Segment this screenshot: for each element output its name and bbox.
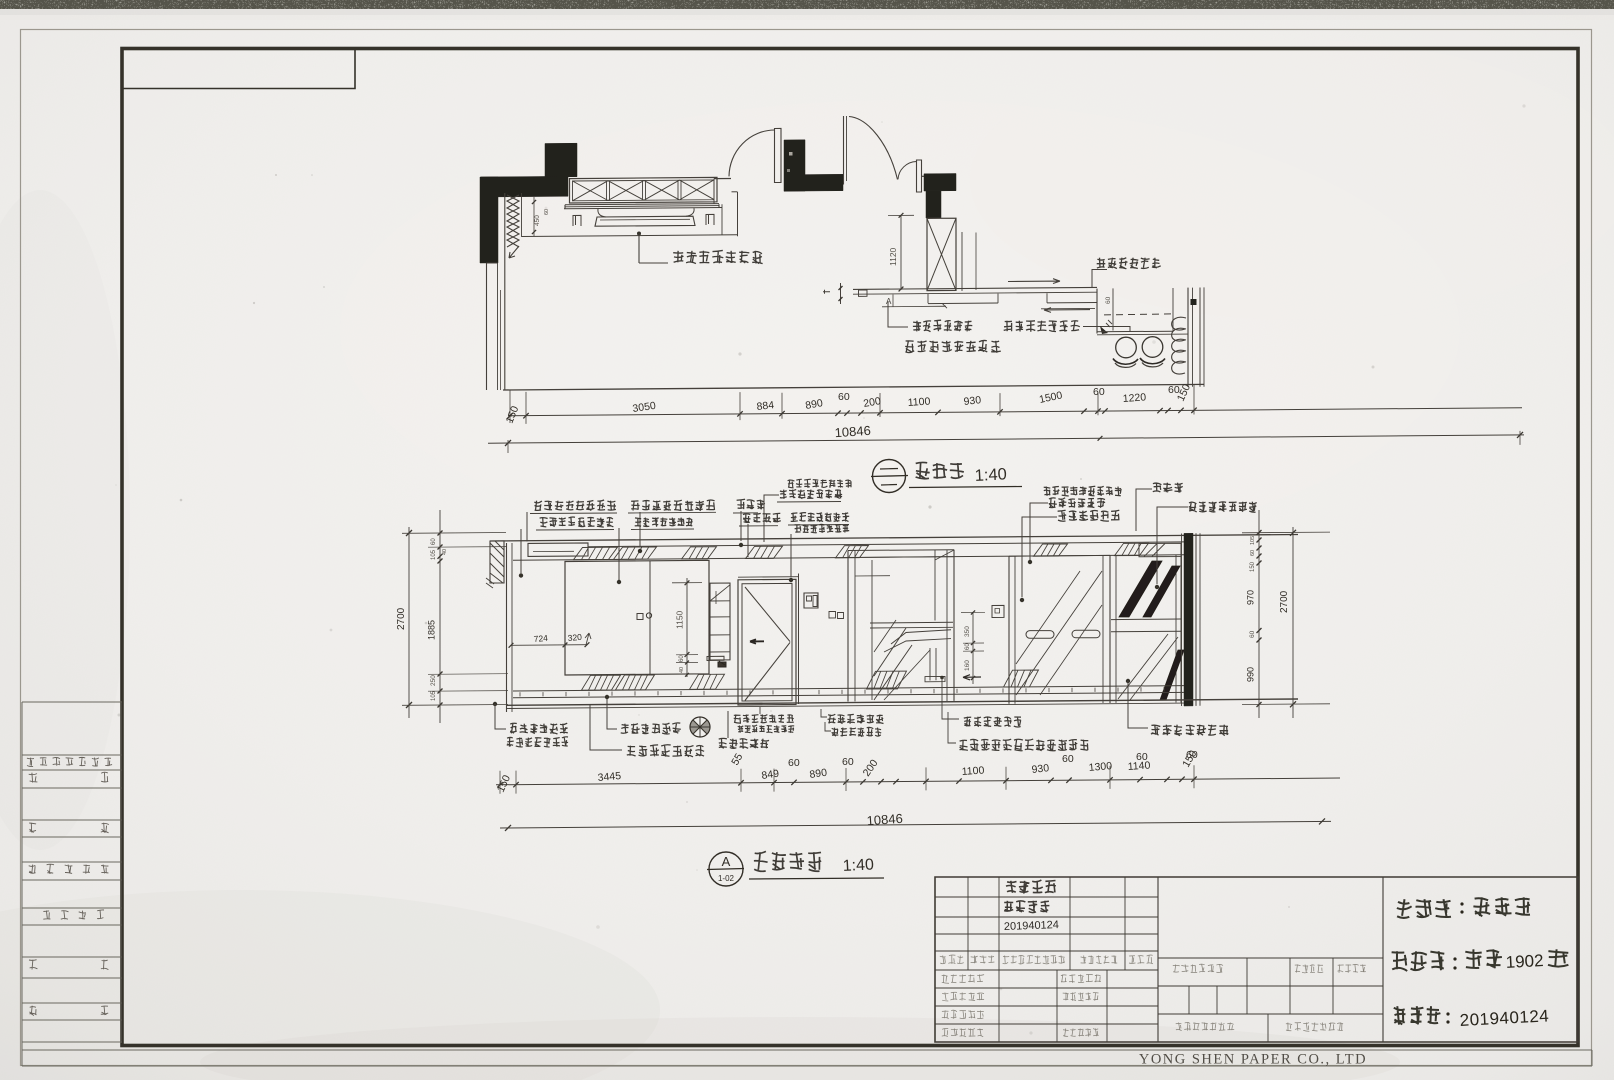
svg-text:60: 60 [1105, 296, 1112, 304]
svg-text:890: 890 [809, 767, 828, 781]
svg-text:60: 60 [842, 756, 854, 768]
svg-text:105: 105 [1250, 536, 1256, 545]
svg-text:A: A [886, 297, 892, 306]
svg-text:250: 250 [430, 675, 437, 686]
svg-text:970: 970 [1246, 590, 1256, 605]
svg-text:105: 105 [431, 690, 437, 701]
svg-text:1140: 1140 [1127, 759, 1151, 773]
svg-text:1:40: 1:40 [842, 856, 874, 875]
svg-text:201940124: 201940124 [1004, 919, 1059, 933]
svg-text:1300: 1300 [1088, 760, 1112, 774]
svg-text:450: 450 [534, 215, 541, 226]
svg-text:1:40: 1:40 [974, 465, 1007, 485]
svg-text:60: 60 [838, 391, 850, 403]
svg-text:1885: 1885 [427, 620, 437, 640]
svg-text:1220: 1220 [1122, 391, 1146, 405]
svg-text:150: 150 [1250, 561, 1256, 572]
svg-text:1100: 1100 [907, 395, 931, 409]
svg-text:1150: 1150 [675, 610, 685, 629]
svg-text:1120: 1120 [888, 247, 898, 266]
svg-text:849: 849 [761, 768, 780, 782]
svg-text:2700: 2700 [396, 607, 407, 630]
svg-text:10846: 10846 [834, 423, 871, 440]
svg-text:60: 60 [788, 757, 800, 769]
svg-text:990: 990 [1246, 667, 1256, 682]
svg-text:60: 60 [1093, 386, 1105, 398]
svg-text:10846: 10846 [866, 811, 903, 828]
svg-text:884: 884 [756, 399, 775, 413]
svg-text:320: 320 [567, 632, 582, 643]
svg-text:724: 724 [533, 633, 548, 644]
svg-text:1902: 1902 [1505, 951, 1544, 972]
svg-text:60: 60 [965, 643, 971, 650]
svg-text:60: 60 [679, 655, 685, 662]
svg-text:160: 160 [964, 660, 971, 671]
svg-text:60: 60 [544, 209, 550, 215]
svg-text:60: 60 [1249, 630, 1256, 638]
svg-text:1-02: 1-02 [718, 874, 735, 883]
svg-text:60: 60 [1250, 550, 1256, 556]
svg-text:60: 60 [431, 538, 437, 545]
svg-text:3445: 3445 [597, 770, 621, 784]
svg-text:930: 930 [1031, 762, 1050, 776]
svg-text:350: 350 [964, 626, 971, 637]
svg-text:1100: 1100 [961, 764, 985, 778]
svg-text:A: A [722, 854, 731, 869]
svg-text:930: 930 [963, 394, 982, 408]
svg-text:40: 40 [442, 549, 448, 555]
svg-text:105: 105 [431, 549, 437, 560]
svg-text:60: 60 [1062, 753, 1074, 765]
svg-text:YONG SHEN PAPER CO., LTD: YONG SHEN PAPER CO., LTD [1139, 1052, 1367, 1068]
svg-text:40: 40 [679, 667, 685, 673]
svg-text:2700: 2700 [1279, 590, 1290, 613]
